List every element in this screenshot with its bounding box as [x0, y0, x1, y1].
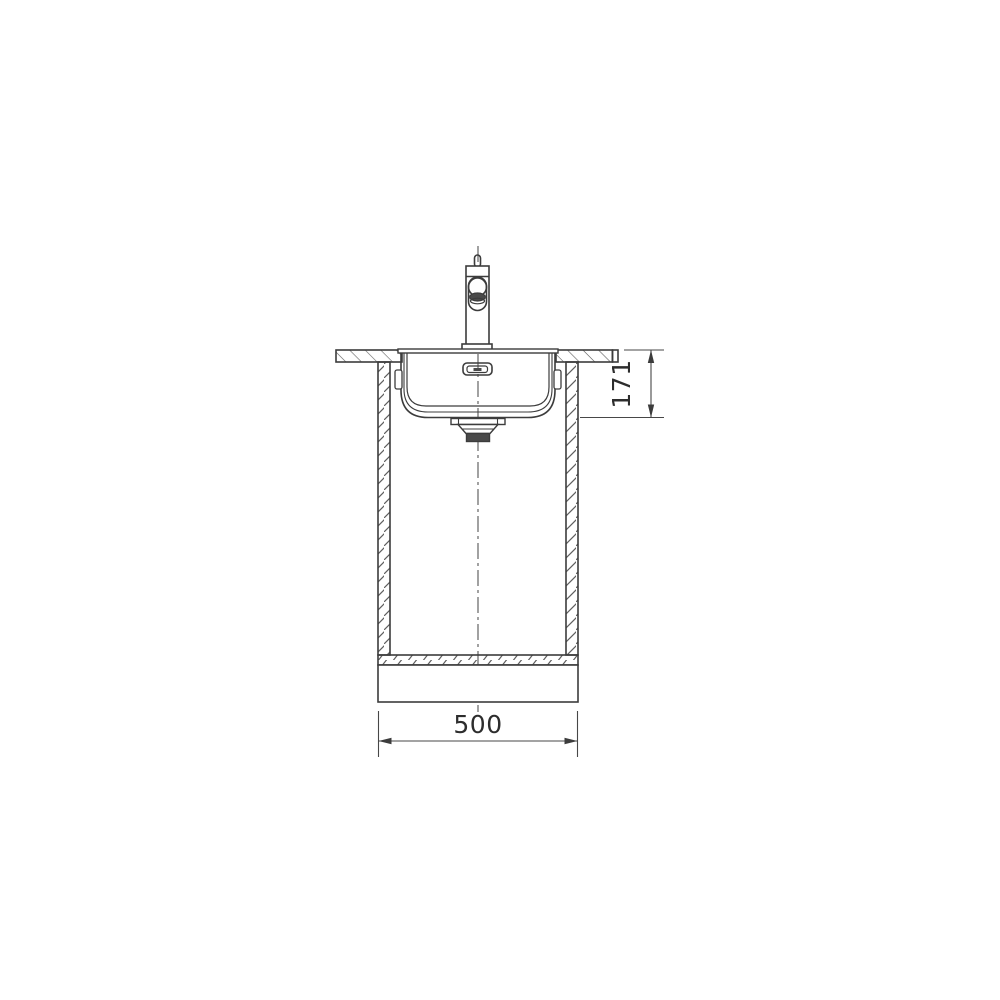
countertop-right	[556, 350, 613, 362]
mounting-clip-left	[395, 370, 402, 389]
cabinet-bottom-panel	[378, 655, 578, 665]
arrow-right-icon	[565, 738, 578, 744]
arrow-down-icon	[648, 405, 654, 418]
arrow-up-icon	[648, 350, 654, 363]
depth-dimension-label: 171	[607, 359, 636, 408]
cabinet-right-wall	[566, 362, 578, 655]
arrow-left-icon	[379, 738, 392, 744]
plinth	[378, 665, 578, 702]
faucet	[462, 255, 492, 350]
sink-rim	[398, 349, 558, 353]
sink-technical-drawing: 171 500	[0, 0, 1000, 1000]
drawing-canvas: 171 500	[0, 0, 1000, 1000]
drain-flange	[451, 419, 505, 425]
cabinet-left-wall	[378, 362, 390, 655]
drain-assembly	[451, 419, 505, 442]
width-dimension-label: 500	[453, 710, 502, 739]
drain-outlet	[467, 434, 490, 442]
countertop-left	[336, 350, 402, 362]
mounting-clip-right	[554, 370, 561, 389]
width-dimension: 500	[379, 710, 578, 757]
